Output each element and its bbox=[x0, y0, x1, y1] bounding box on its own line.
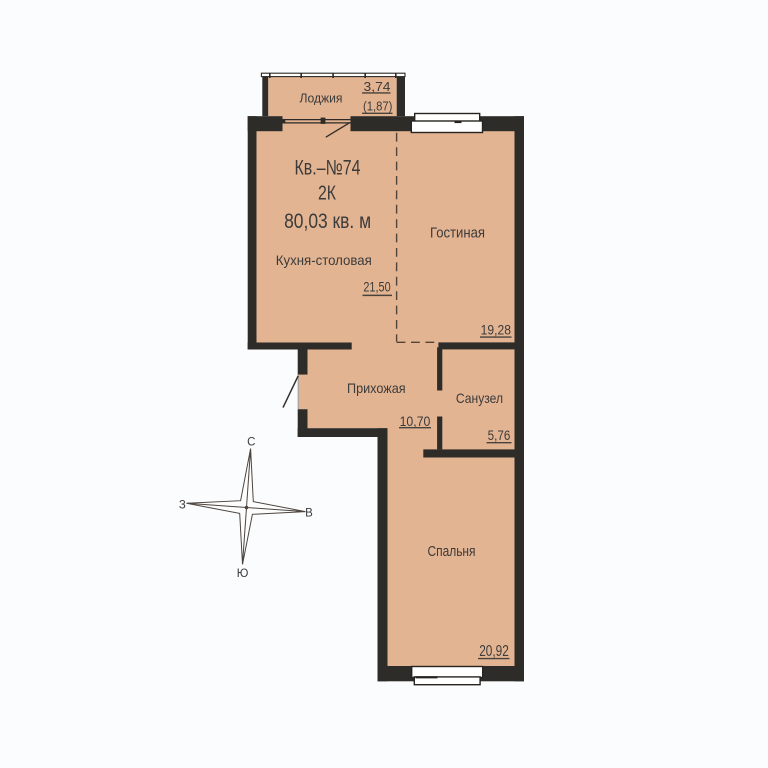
svg-text:(1,87): (1,87) bbox=[363, 99, 393, 114]
svg-text:Кухня-столовая: Кухня-столовая bbox=[276, 252, 372, 268]
svg-text:80,03 кв. м: 80,03 кв. м bbox=[284, 210, 371, 233]
svg-text:Прихожая: Прихожая bbox=[347, 380, 406, 396]
svg-text:В: В bbox=[305, 507, 313, 519]
svg-text:Кв.–№74: Кв.–№74 bbox=[295, 156, 361, 179]
svg-text:Спальня: Спальня bbox=[428, 543, 476, 560]
svg-text:2К: 2К bbox=[318, 183, 336, 205]
svg-text:5,76: 5,76 bbox=[488, 428, 511, 443]
svg-text:Ю: Ю bbox=[237, 568, 249, 580]
svg-text:Санузел: Санузел bbox=[456, 390, 503, 406]
svg-text:З: З bbox=[179, 500, 186, 512]
svg-text:10,70: 10,70 bbox=[400, 413, 431, 429]
svg-text:19,28: 19,28 bbox=[481, 321, 511, 337]
svg-text:20,92: 20,92 bbox=[479, 643, 509, 660]
svg-text:21,50: 21,50 bbox=[363, 280, 390, 295]
svg-text:С: С bbox=[247, 437, 255, 449]
svg-text:3,74: 3,74 bbox=[364, 79, 391, 94]
svg-text:Гостиная: Гостиная bbox=[430, 225, 485, 242]
svg-text:Лоджия: Лоджия bbox=[300, 90, 343, 105]
